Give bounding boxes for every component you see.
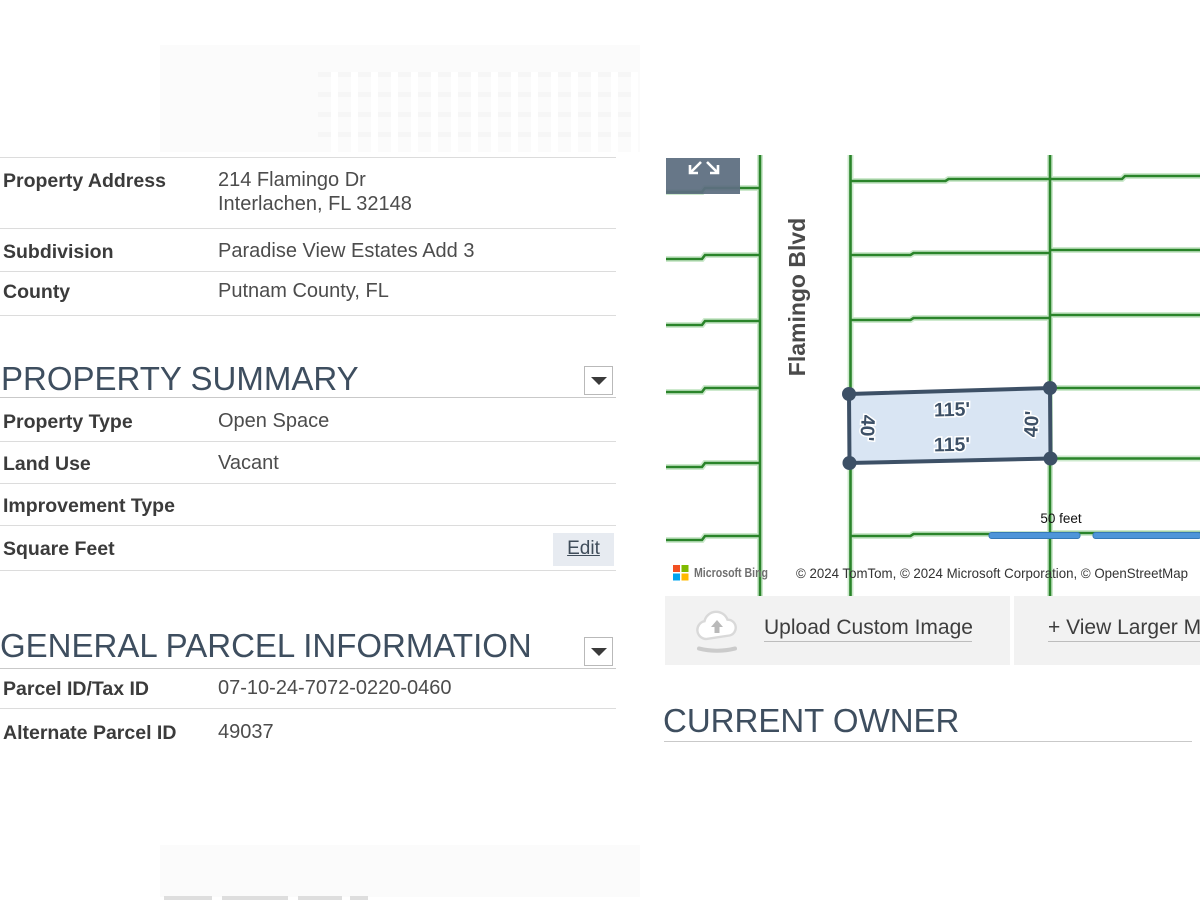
svg-text:40': 40' bbox=[1020, 410, 1043, 437]
svg-text:50 feet: 50 feet bbox=[1040, 511, 1082, 526]
svg-text:115': 115' bbox=[934, 399, 971, 422]
svg-text:Microsoft Bing: Microsoft Bing bbox=[694, 566, 768, 580]
svg-text:Flamingo Blvd: Flamingo Blvd bbox=[784, 218, 810, 376]
svg-text:40': 40' bbox=[855, 414, 878, 441]
svg-text:© 2024 TomTom, © 2024 Microsof: © 2024 TomTom, © 2024 Microsoft Corporat… bbox=[796, 565, 1188, 581]
svg-text:115': 115' bbox=[934, 434, 970, 457]
